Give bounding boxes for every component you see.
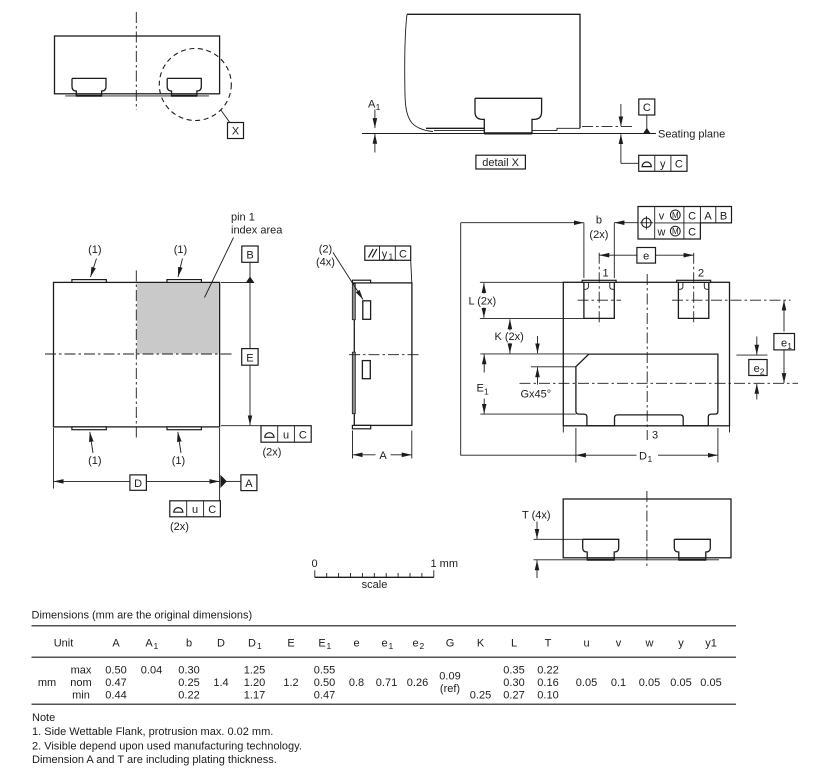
- svg-text:1: 1: [787, 341, 792, 351]
- svg-text:C: C: [208, 504, 216, 516]
- svg-text:0.05: 0.05: [576, 677, 597, 689]
- svg-text:A: A: [112, 638, 120, 650]
- svg-text:b: b: [186, 638, 192, 650]
- svg-text:(2x): (2x): [589, 229, 608, 241]
- svg-text:Gx45°: Gx45°: [521, 389, 552, 401]
- svg-text:mm: mm: [38, 677, 56, 689]
- svg-text:0.47: 0.47: [105, 677, 126, 689]
- svg-text:0.30: 0.30: [503, 677, 524, 689]
- svg-text:Seating plane: Seating plane: [658, 128, 725, 140]
- svg-text:0.16: 0.16: [537, 677, 558, 689]
- svg-text:1: 1: [484, 387, 489, 397]
- svg-text:2: 2: [420, 641, 425, 651]
- svg-text:C: C: [299, 429, 307, 441]
- svg-text:v: v: [659, 210, 665, 222]
- svg-text:C: C: [399, 248, 407, 260]
- svg-text:0.1: 0.1: [611, 677, 626, 689]
- svg-text:b: b: [596, 215, 602, 227]
- svg-text:0: 0: [311, 558, 317, 570]
- svg-text:3: 3: [652, 430, 658, 442]
- svg-text:(2): (2): [319, 244, 332, 256]
- svg-text:X: X: [232, 126, 240, 138]
- svg-text:0.05: 0.05: [700, 677, 721, 689]
- svg-text:0.50: 0.50: [314, 677, 335, 689]
- svg-text:B: B: [246, 250, 253, 262]
- svg-text:2. Visible depend upon used ma: 2. Visible depend upon used manufacturin…: [32, 740, 302, 752]
- svg-text:y: y: [660, 158, 666, 170]
- svg-text:T: T: [545, 638, 552, 650]
- svg-text:1: 1: [648, 454, 653, 464]
- svg-text:y: y: [382, 248, 388, 260]
- svg-text:y1: y1: [705, 638, 717, 650]
- svg-text:L: L: [511, 638, 517, 650]
- svg-text:(1): (1): [174, 244, 187, 256]
- svg-text:min: min: [72, 689, 90, 701]
- svg-text:(2x): (2x): [263, 446, 282, 458]
- svg-text:(4x): (4x): [316, 257, 335, 269]
- svg-text:0.25: 0.25: [470, 689, 491, 701]
- svg-text:(1): (1): [88, 455, 101, 467]
- svg-text:detail X: detail X: [482, 157, 519, 169]
- svg-text:0.22: 0.22: [537, 664, 558, 676]
- svg-text:D: D: [639, 451, 647, 463]
- svg-text:E: E: [318, 638, 325, 650]
- svg-text:nom: nom: [70, 677, 91, 689]
- svg-text:K (2x): K (2x): [495, 331, 524, 343]
- svg-text:1.4: 1.4: [213, 677, 228, 689]
- svg-text:1: 1: [389, 251, 394, 261]
- svg-text:0.44: 0.44: [105, 689, 126, 701]
- svg-text:L (2x): L (2x): [469, 296, 497, 308]
- svg-text:index area: index area: [231, 225, 283, 237]
- svg-text:e: e: [353, 638, 359, 650]
- svg-text:1.2: 1.2: [283, 677, 298, 689]
- svg-text:1. Side Wettable Flank, protru: 1. Side Wettable Flank, protrusion max. …: [32, 726, 273, 738]
- svg-text:e: e: [643, 250, 649, 262]
- svg-text:Unit: Unit: [54, 638, 74, 650]
- svg-text:D: D: [217, 638, 225, 650]
- svg-text:0.25: 0.25: [178, 677, 199, 689]
- svg-text:u: u: [283, 429, 289, 441]
- svg-text:0.71: 0.71: [376, 677, 397, 689]
- svg-text:0.30: 0.30: [178, 664, 199, 676]
- svg-text:1.17: 1.17: [244, 689, 265, 701]
- svg-text:0.50: 0.50: [105, 664, 126, 676]
- svg-text:0.35: 0.35: [503, 664, 524, 676]
- svg-text:1: 1: [602, 268, 608, 280]
- svg-text:D: D: [248, 638, 256, 650]
- svg-text:A: A: [379, 450, 387, 462]
- svg-text:scale: scale: [362, 579, 388, 591]
- svg-text:(ref): (ref): [440, 683, 460, 695]
- svg-text:y: y: [678, 638, 684, 650]
- svg-text:E: E: [477, 383, 484, 395]
- svg-text:0.10: 0.10: [537, 689, 558, 701]
- svg-text:M: M: [672, 211, 679, 220]
- svg-text:A: A: [245, 478, 253, 490]
- svg-text:M: M: [672, 227, 679, 236]
- svg-text:2: 2: [698, 268, 704, 280]
- svg-text:1: 1: [389, 641, 394, 651]
- svg-text:G: G: [446, 638, 455, 650]
- svg-text:A: A: [145, 638, 153, 650]
- svg-text:1 mm: 1 mm: [431, 558, 459, 570]
- svg-text:C: C: [675, 158, 683, 170]
- svg-text:D: D: [134, 478, 142, 490]
- svg-text:Note: Note: [32, 712, 55, 724]
- svg-text:pin 1: pin 1: [231, 212, 255, 224]
- svg-text:A: A: [704, 210, 712, 222]
- svg-text:2: 2: [760, 367, 765, 377]
- svg-text:u: u: [583, 638, 589, 650]
- svg-text:0.27: 0.27: [503, 689, 524, 701]
- svg-text:0.22: 0.22: [178, 689, 199, 701]
- svg-text:E: E: [287, 638, 294, 650]
- svg-text:w: w: [645, 638, 654, 650]
- svg-text:(2x): (2x): [170, 521, 189, 533]
- svg-text:1: 1: [154, 641, 159, 651]
- svg-text:T (4x): T (4x): [522, 510, 551, 522]
- svg-text:0.05: 0.05: [639, 677, 660, 689]
- svg-text:Dimension A and T are includin: Dimension A and T are including plating …: [32, 754, 277, 766]
- svg-text:v: v: [616, 638, 622, 650]
- svg-text:1: 1: [257, 641, 262, 651]
- svg-text:max: max: [71, 664, 92, 676]
- svg-text:1: 1: [327, 641, 332, 651]
- svg-text:K: K: [477, 638, 485, 650]
- svg-text:0.26: 0.26: [407, 677, 428, 689]
- svg-text:0.47: 0.47: [314, 689, 335, 701]
- svg-text:1.25: 1.25: [244, 664, 265, 676]
- svg-text:e: e: [754, 363, 760, 375]
- svg-text:B: B: [720, 210, 727, 222]
- svg-text:Dimensions (mm are the origina: Dimensions (mm are the original dimensio…: [32, 610, 253, 622]
- svg-text:w: w: [657, 227, 666, 239]
- svg-text:u: u: [192, 504, 198, 516]
- svg-text:e: e: [412, 638, 418, 650]
- svg-text:(1): (1): [88, 244, 101, 256]
- svg-text:E: E: [246, 352, 253, 364]
- svg-text:(1): (1): [172, 455, 185, 467]
- svg-text:0.55: 0.55: [314, 664, 335, 676]
- svg-text:C: C: [688, 210, 696, 222]
- svg-text:1.20: 1.20: [244, 677, 265, 689]
- svg-text:0.05: 0.05: [670, 677, 691, 689]
- svg-text:1: 1: [376, 102, 381, 112]
- svg-text:0.8: 0.8: [349, 677, 364, 689]
- svg-text:C: C: [643, 102, 651, 114]
- svg-text:C: C: [688, 227, 696, 239]
- svg-text:0.04: 0.04: [141, 664, 162, 676]
- svg-text:0.09: 0.09: [439, 671, 460, 683]
- svg-text:e: e: [381, 638, 387, 650]
